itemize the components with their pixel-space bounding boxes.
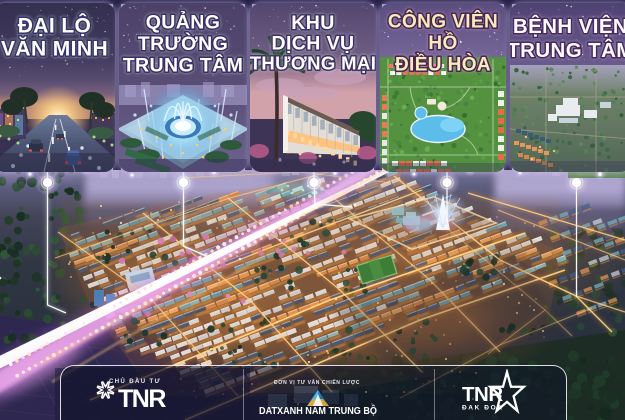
svg-text:DATXANH NAM TRUNG BỘ: DATXANH NAM TRUNG BỘ (259, 405, 377, 417)
svg-text:TRUNG TÂM: TRUNG TÂM (123, 53, 244, 77)
svg-text:ĐIỀU HÒA: ĐIỀU HÒA (395, 54, 491, 76)
svg-text:TRƯỜNG: TRƯỜNG (138, 31, 228, 55)
svg-text:ĐẠI LỘ: ĐẠI LỘ (18, 14, 92, 38)
svg-text:VĂN MINH: VĂN MINH (1, 38, 108, 61)
svg-text:THƯƠNG MẠI: THƯƠNG MẠI (250, 53, 376, 74)
svg-text:KHU: KHU (291, 12, 334, 34)
svg-text:BỆNH VIỆN: BỆNH VIỆN (513, 14, 625, 38)
svg-text:ĐAK ĐOA: ĐAK ĐOA (462, 405, 504, 412)
svg-text:TRUNG TÂM: TRUNG TÂM (510, 38, 625, 62)
svg-text:DỊCH VỤ: DỊCH VỤ (272, 33, 355, 55)
svg-text:TNR: TNR (462, 383, 503, 406)
svg-text:CÔNG VIÊN: CÔNG VIÊN (388, 11, 498, 33)
svg-text:QUẢNG: QUẢNG (146, 11, 221, 34)
svg-text:HỒ: HỒ (428, 32, 457, 54)
svg-text:TNR: TNR (118, 385, 166, 413)
